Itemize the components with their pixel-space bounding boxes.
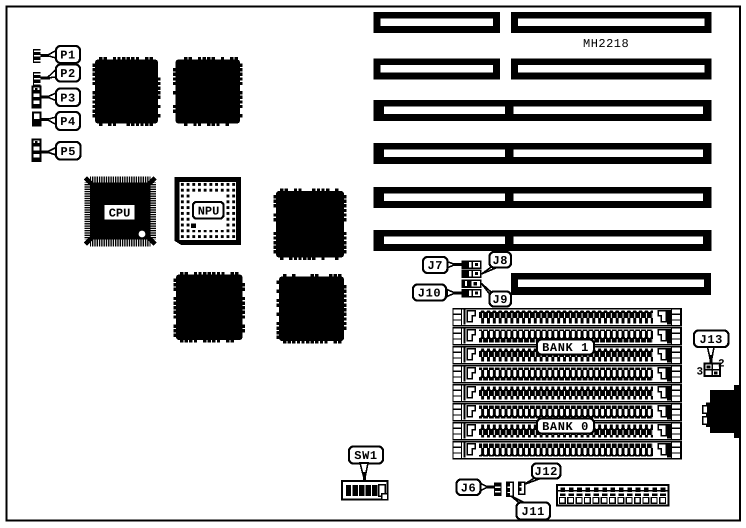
svg-text:NPU: NPU (198, 205, 220, 219)
svg-text:3: 3 (697, 367, 704, 379)
svg-text:J8: J8 (492, 254, 508, 268)
svg-text:J13: J13 (700, 333, 723, 347)
svg-text:BANK 1: BANK 1 (542, 341, 589, 355)
svg-text:J7: J7 (427, 259, 443, 273)
svg-text:P1: P1 (60, 49, 76, 63)
svg-text:CPU: CPU (109, 207, 131, 221)
svg-text:J11: J11 (522, 505, 545, 519)
svg-text:MH2218: MH2218 (583, 37, 629, 51)
svg-text:J9: J9 (492, 293, 508, 307)
svg-text:P4: P4 (60, 115, 76, 129)
svg-text:J6: J6 (461, 481, 477, 495)
svg-text:2: 2 (718, 359, 725, 371)
svg-text:SW1: SW1 (354, 449, 377, 463)
svg-text:BANK 0: BANK 0 (542, 420, 589, 434)
svg-text:P3: P3 (60, 91, 76, 105)
svg-text:J10: J10 (418, 287, 441, 301)
svg-text:J12: J12 (535, 465, 558, 479)
svg-text:P2: P2 (60, 67, 76, 81)
svg-text:P5: P5 (60, 145, 76, 159)
